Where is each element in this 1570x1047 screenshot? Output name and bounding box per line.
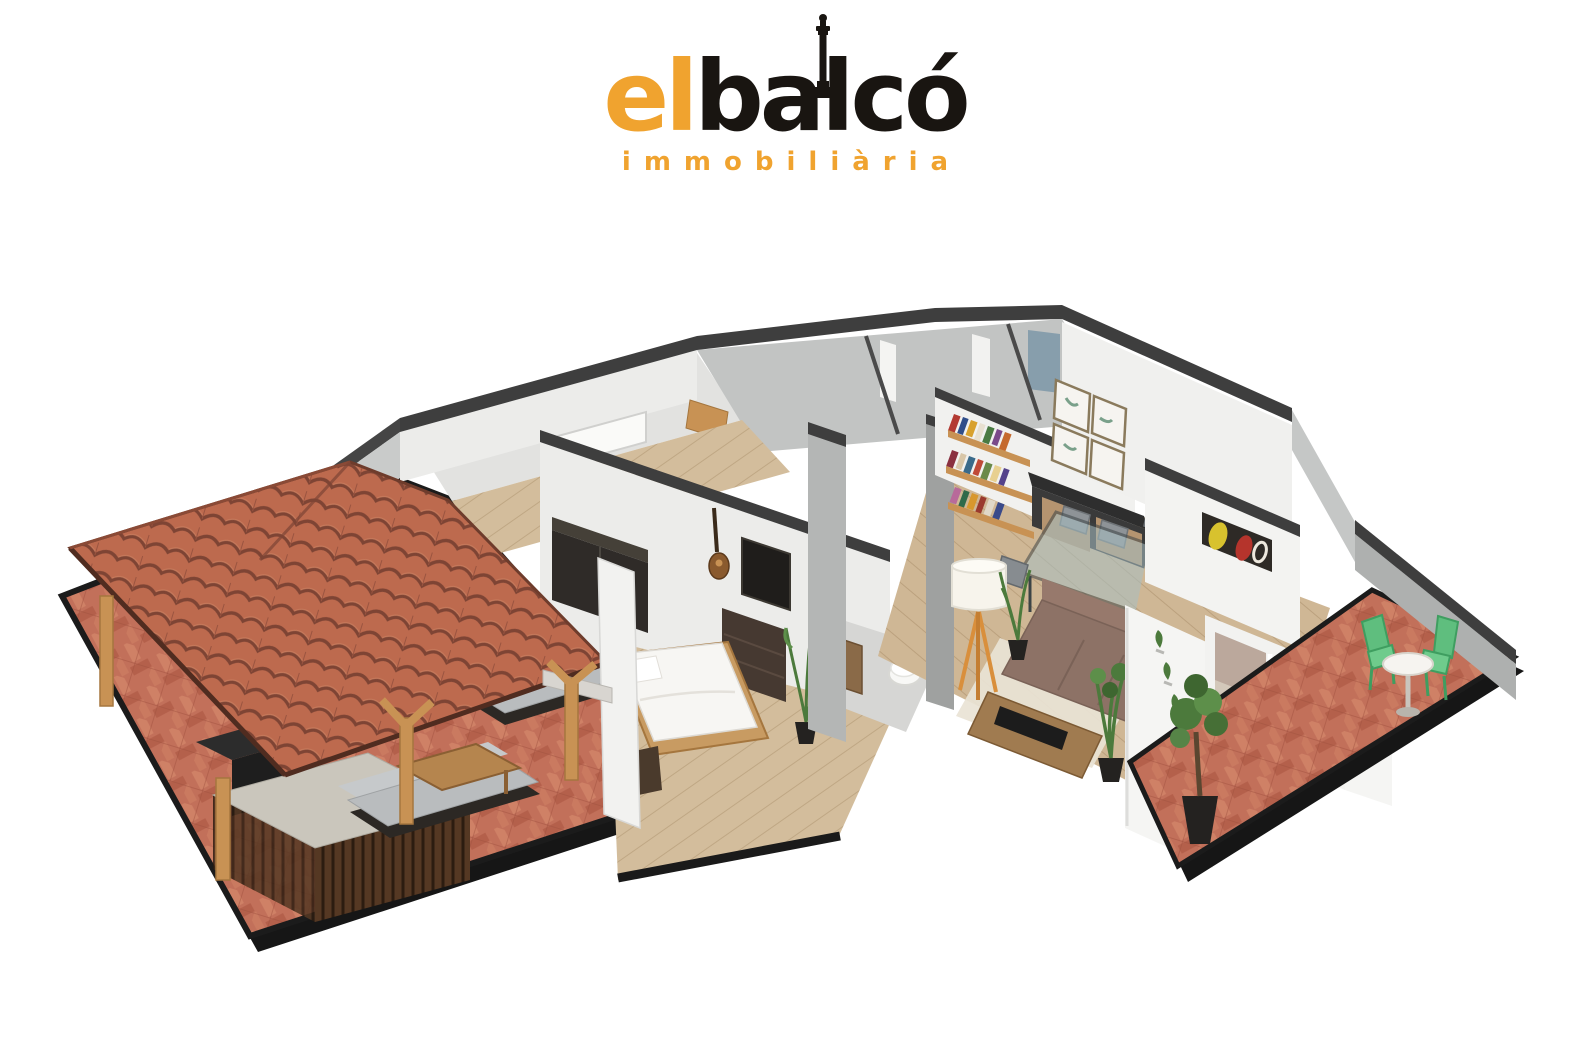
column-monument-icon: [812, 12, 834, 100]
brand-logo: elbalcó immobiliària: [0, 48, 1570, 177]
utility-fixture-white: [972, 334, 990, 397]
timber-post: [400, 718, 413, 824]
logo-text-el: el: [603, 40, 694, 153]
timber-post: [216, 778, 230, 880]
utility-fixture-white: [880, 340, 896, 402]
north-wall-top: [935, 305, 1062, 322]
timber-post: [100, 596, 113, 706]
page: elbalcó immobiliària: [0, 0, 1570, 1047]
brand-wordmark: elbalcó: [603, 48, 966, 145]
timber-post: [565, 678, 578, 780]
bathroom-west-wall-face: [808, 434, 846, 742]
east-wall-outer-face: [1292, 410, 1355, 562]
